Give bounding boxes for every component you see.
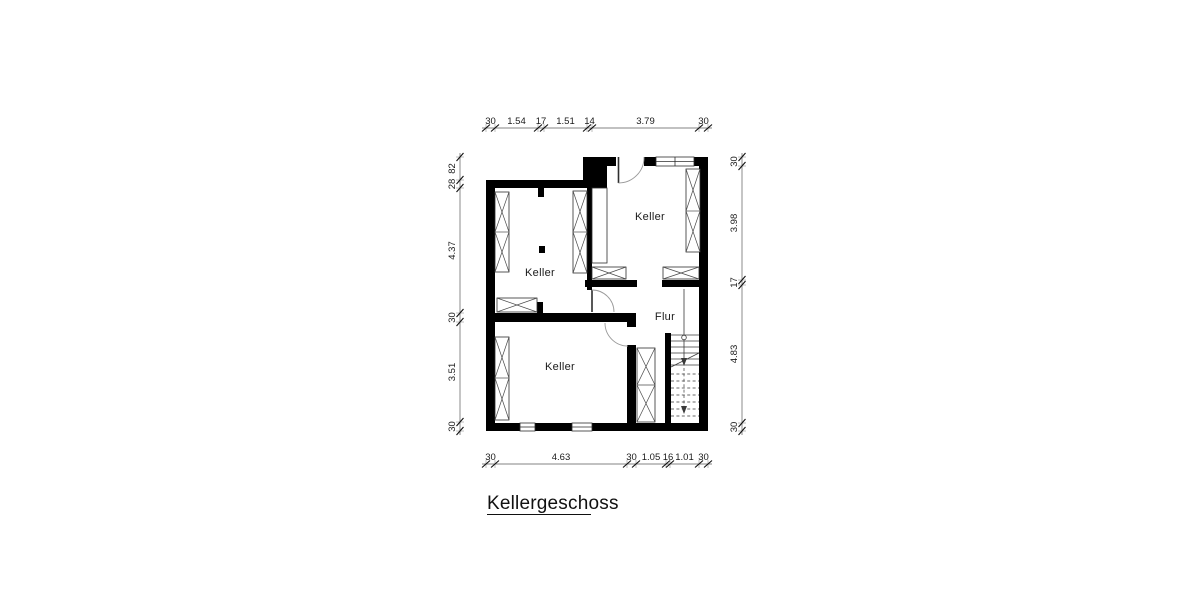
dim-label: 14 xyxy=(584,116,595,127)
door-top-entrance xyxy=(619,157,645,183)
wall-segment xyxy=(583,157,607,188)
shaft xyxy=(663,267,699,279)
window-bottom-left xyxy=(520,423,535,431)
staircase xyxy=(671,289,699,416)
wall-segment xyxy=(587,185,592,290)
window-bottom-right xyxy=(572,423,592,431)
dimension-chain-bottom: 30 4.63 30 1.05 16 1.01 30 xyxy=(485,452,709,463)
plan-title-text: Kellergeschoss xyxy=(487,493,619,514)
wall-segment xyxy=(585,280,637,287)
wall-segment xyxy=(627,345,636,423)
dim-label: 4.37 xyxy=(447,241,458,260)
wall-segment xyxy=(644,157,656,166)
dim-label: 30 xyxy=(626,452,637,463)
wall-segment xyxy=(537,302,543,313)
dim-label: 82 xyxy=(447,163,458,174)
shaft xyxy=(592,267,626,279)
shaft-box xyxy=(495,337,509,420)
dim-label: 3.79 xyxy=(636,116,655,127)
stair-walkline-start xyxy=(682,335,687,340)
dim-label: 1.51 xyxy=(556,116,575,127)
dim-label: 3.98 xyxy=(729,214,740,233)
shaft xyxy=(573,191,587,273)
dim-label: 30 xyxy=(447,421,458,432)
dim-label: 4.83 xyxy=(729,345,740,364)
window-top xyxy=(656,157,694,166)
dim-label: 30 xyxy=(485,452,496,463)
dim-label: 30 xyxy=(447,312,458,323)
wall-segment xyxy=(486,180,495,431)
dimension-chain-right: 30 3.98 17 4.83 30 xyxy=(729,156,740,432)
wall-segment xyxy=(495,313,636,322)
drawing-sheet: 30 1.54 17 1.51 14 3.79 30 30 4.63 30 1.… xyxy=(0,0,1200,600)
room-label-flur: Flur xyxy=(655,311,675,323)
wall-niche xyxy=(592,188,607,263)
wall-segment xyxy=(605,157,616,166)
dimension-chain-left: 82 28 4.37 30 3.51 30 xyxy=(447,163,458,432)
room-label-keller-upper-left: Keller xyxy=(525,267,555,279)
dim-label: 1.05 xyxy=(642,452,661,463)
door-flur-keller-lower xyxy=(605,323,628,346)
dim-label: 30 xyxy=(729,156,740,167)
wall-segment xyxy=(627,322,636,327)
shaft xyxy=(495,337,509,420)
stair-arrow xyxy=(681,406,687,414)
wall-segment xyxy=(539,246,545,253)
wall-segment xyxy=(486,180,592,188)
dim-label: 1.01 xyxy=(675,452,694,463)
wall-segment xyxy=(592,423,708,431)
wall-segment xyxy=(662,280,700,287)
dim-label: 30 xyxy=(729,422,740,433)
room-label-keller-upper-right: Keller xyxy=(635,211,665,223)
wall-segment xyxy=(538,188,544,197)
dim-label: 16 xyxy=(663,452,674,463)
wall-segment xyxy=(486,423,520,431)
dim-label: 30 xyxy=(698,116,709,127)
door-keller-flur xyxy=(592,290,614,312)
shaft xyxy=(686,169,700,252)
shaft xyxy=(637,348,655,422)
dim-label: 4.63 xyxy=(552,452,571,463)
dimension-chain-top: 30 1.54 17 1.51 14 3.79 30 xyxy=(485,116,709,127)
dim-label: 30 xyxy=(485,116,496,127)
shaft xyxy=(497,298,537,312)
dim-label: 17 xyxy=(536,116,547,127)
dim-label: 28 xyxy=(447,179,458,190)
floor-plan-canvas: 30 1.54 17 1.51 14 3.79 30 30 4.63 30 1.… xyxy=(0,0,1200,600)
dim-label: 30 xyxy=(698,452,709,463)
shaft-box xyxy=(686,169,700,252)
dim-label: 3.51 xyxy=(447,363,458,382)
wall-segment xyxy=(665,333,671,423)
plan-title: Kellergeschoss xyxy=(487,493,619,515)
dim-label: 17 xyxy=(729,277,740,288)
dim-label: 1.54 xyxy=(507,116,526,127)
wall-segment xyxy=(535,423,572,431)
room-label-keller-lower-left: Keller xyxy=(545,361,575,373)
shaft xyxy=(495,192,509,272)
